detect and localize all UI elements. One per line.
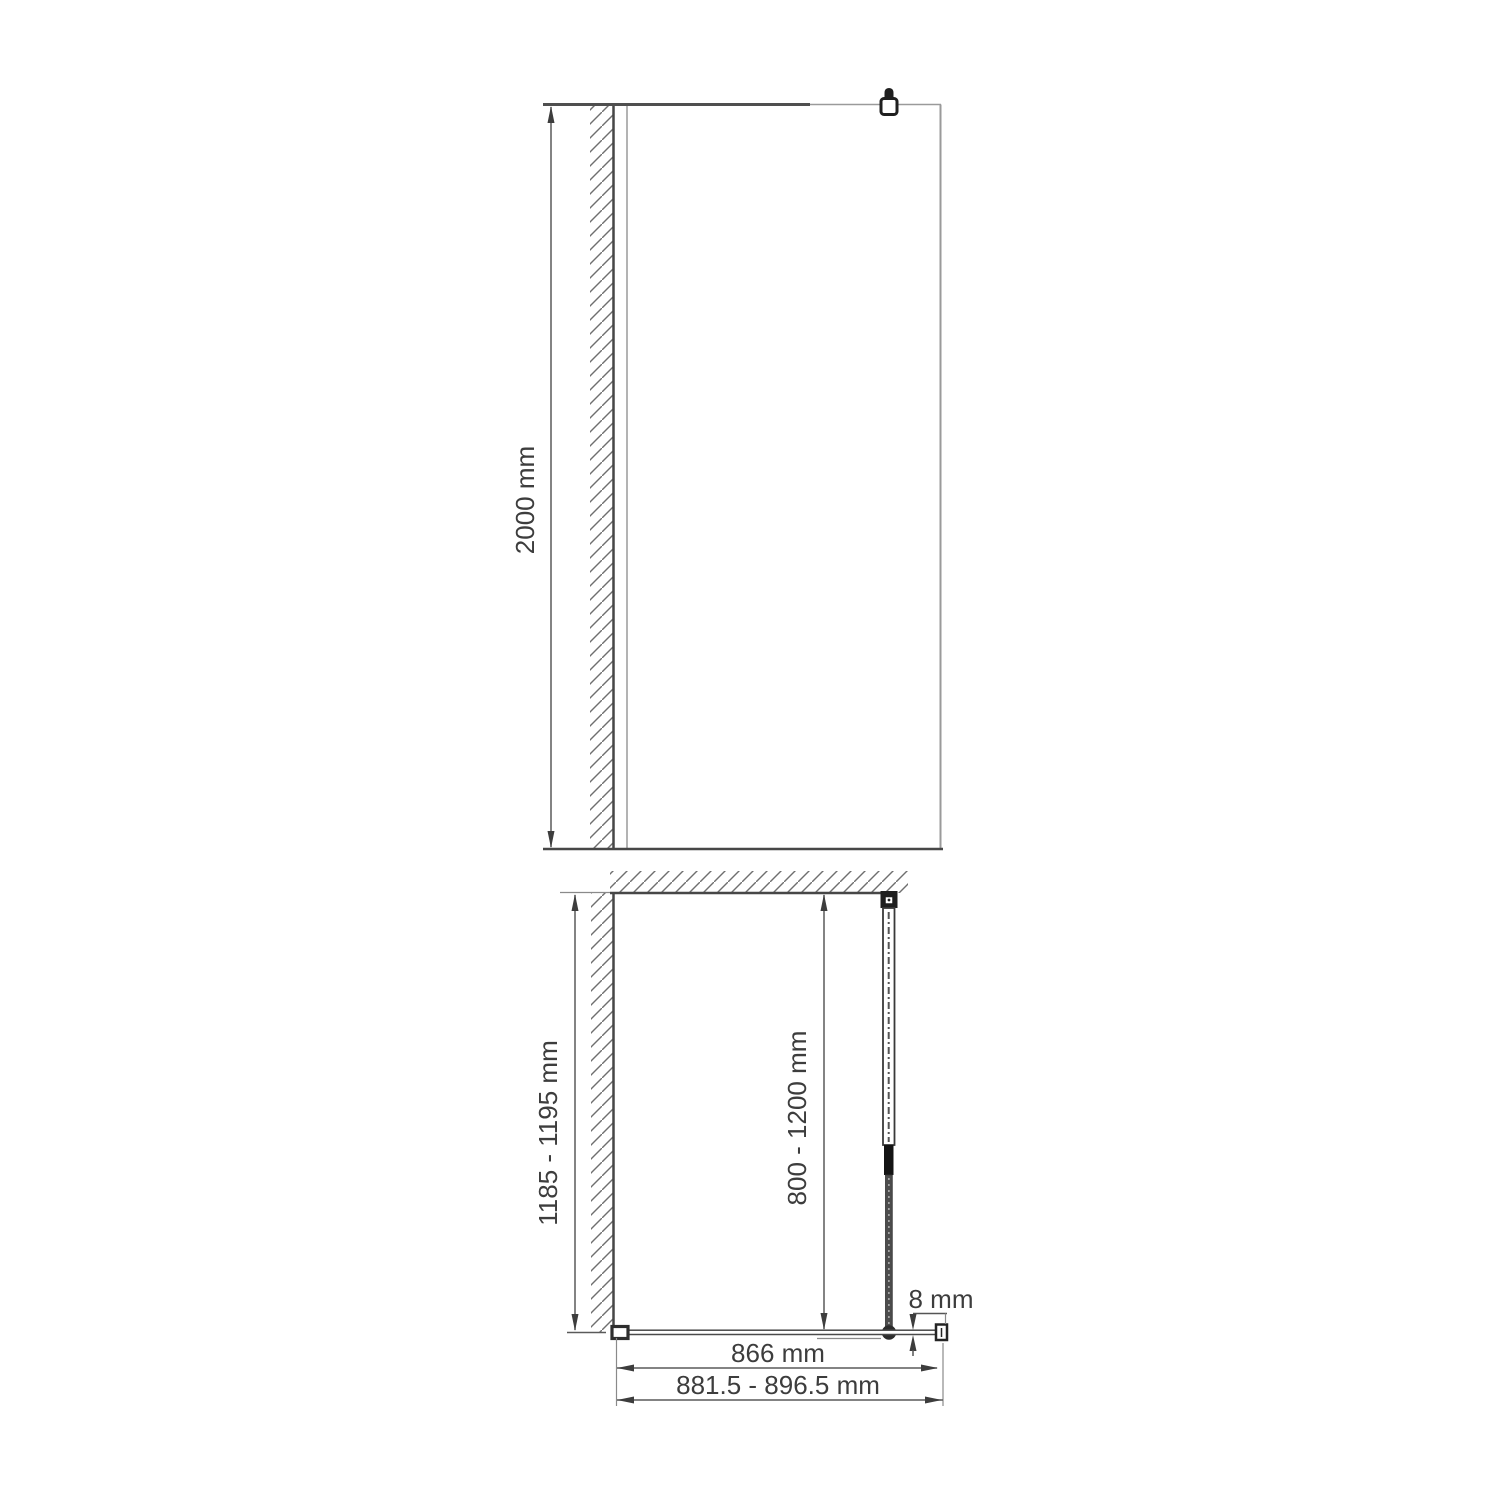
glass-width-dimension: 866 mm <box>617 1338 938 1372</box>
overall-width-label: 881.5 - 896.5 mm <box>676 1370 880 1400</box>
glass-thickness-dimension: 8 mm <box>909 1284 974 1356</box>
shower-screen-drawing: 2000 mm 1185 - 1195 mm 800 - 1200 mm <box>0 0 1500 1500</box>
front-view: 2000 mm <box>510 88 943 849</box>
height-dimension-label: 2000 mm <box>510 446 540 554</box>
support-bar-dimension: 800 - 1200 mm <box>782 894 881 1339</box>
height-dimension: 2000 mm <box>510 106 555 848</box>
support-bar-plan <box>881 891 898 1340</box>
plan-top-wall-hatch <box>610 871 908 893</box>
overall-width-dimension: 881.5 - 896.5 mm <box>617 1370 943 1404</box>
glass-thickness-label: 8 mm <box>909 1284 974 1314</box>
plan-view: 1185 - 1195 mm 800 - 1200 mm <box>533 871 974 1406</box>
support-bar-coupler <box>884 1145 894 1175</box>
support-bar-clamp-front-icon <box>881 88 897 115</box>
wall-profile-section-icon <box>612 1327 628 1339</box>
glass-width-label: 866 mm <box>731 1338 825 1368</box>
depth-dimension-label: 1185 - 1195 mm <box>533 1040 563 1225</box>
glass-panel-section <box>616 1330 936 1334</box>
front-wall-hatch <box>590 105 613 849</box>
technical-drawing-canvas: 2000 mm 1185 - 1195 mm 800 - 1200 mm <box>0 0 1500 1500</box>
support-bar-dimension-label: 800 - 1200 mm <box>782 1031 812 1206</box>
plan-left-wall-hatch <box>591 893 613 1333</box>
